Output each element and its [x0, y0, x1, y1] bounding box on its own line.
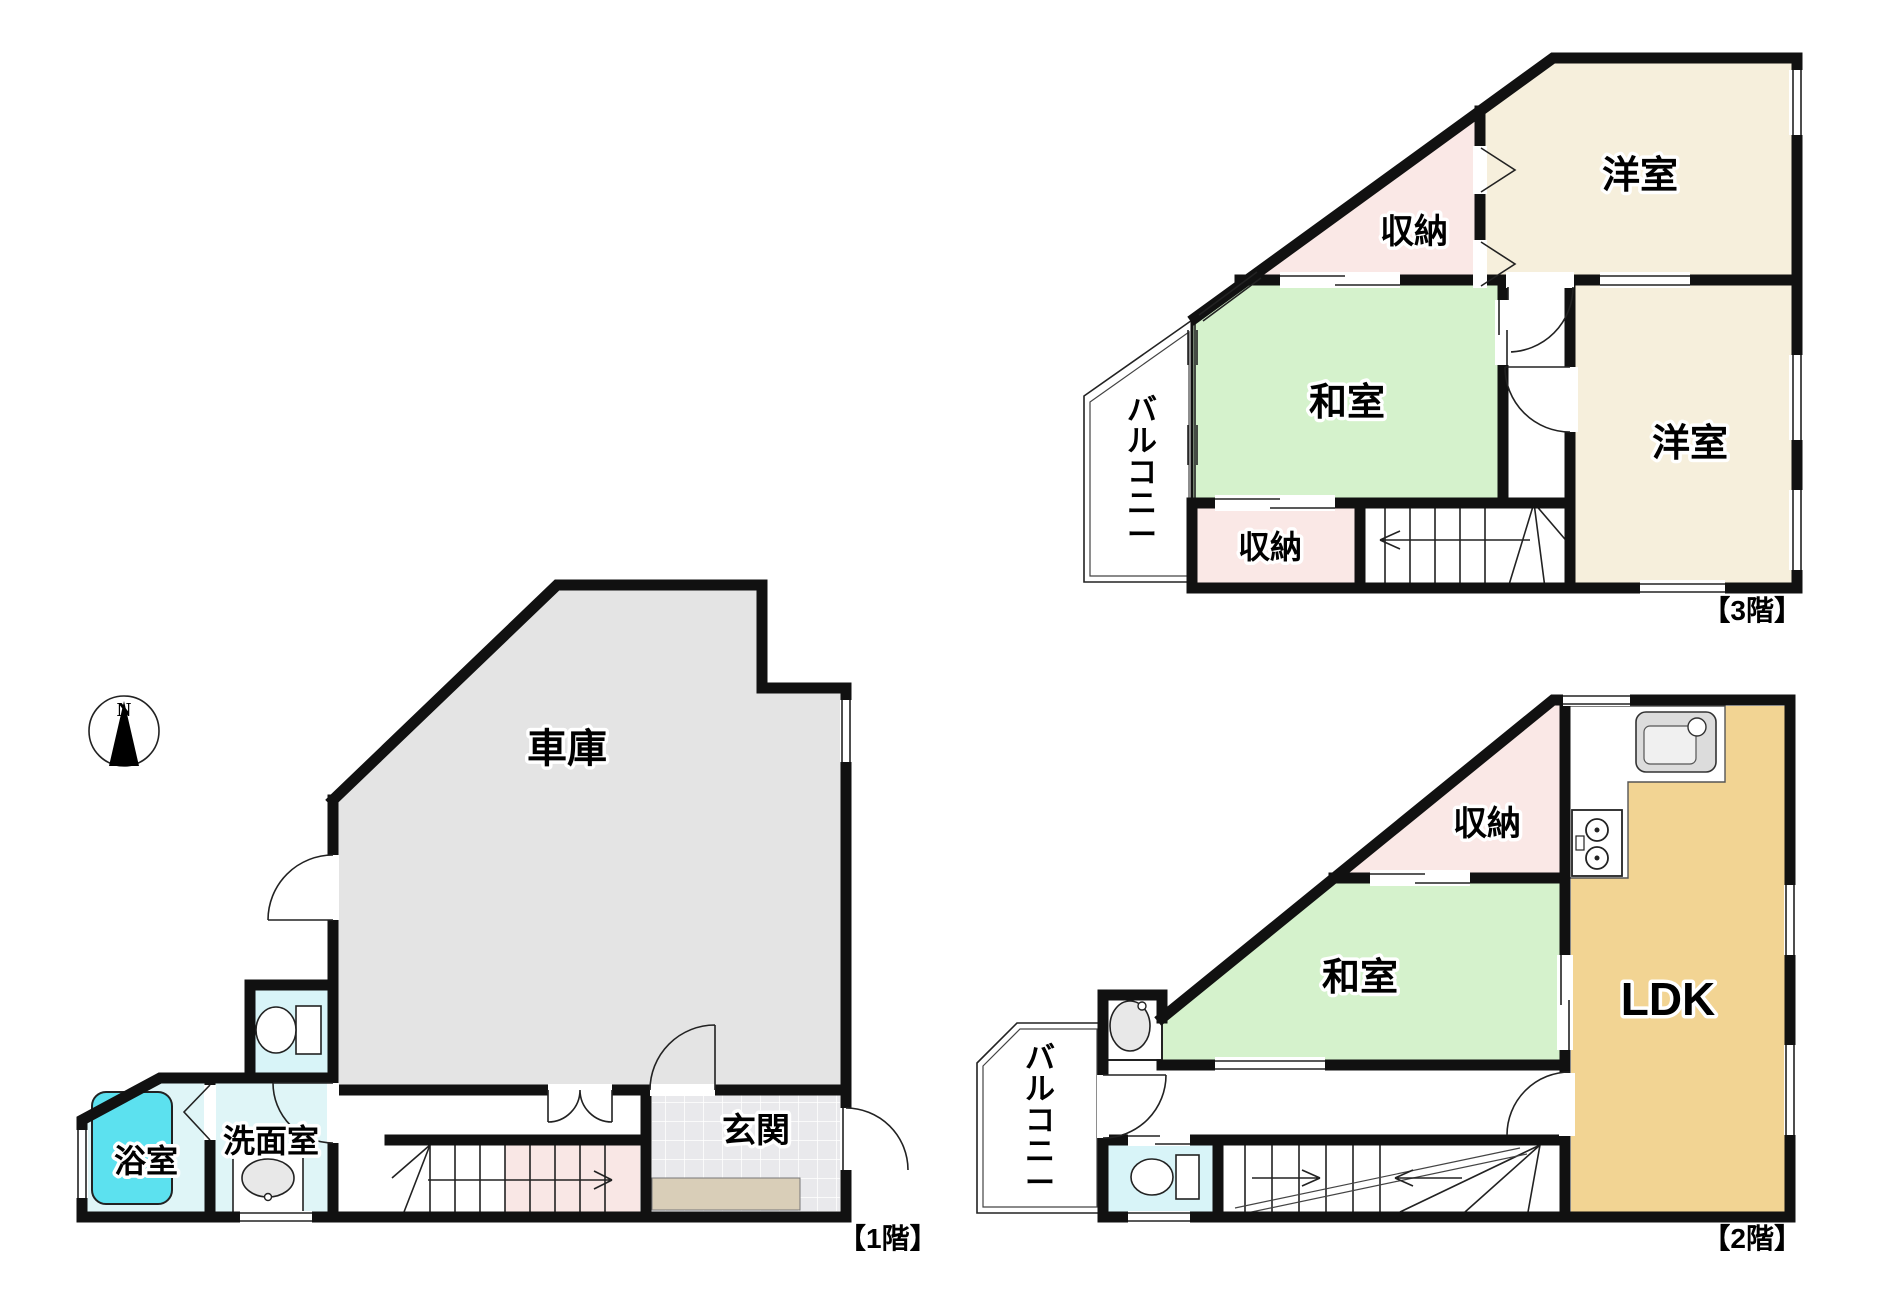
toilet-icon-1f [256, 1006, 321, 1054]
floor2-plan: 収納 和室 LDK バルコニー 【2階】 [977, 694, 1802, 1254]
floor2-label: 【2階】 [1702, 1223, 1802, 1254]
room-label-bathroom: 浴室 [114, 1143, 178, 1179]
entrance-mat [652, 1178, 800, 1210]
room-label-shuno-2f: 収納 [1453, 805, 1521, 843]
room-label-washroom: 洗面室 [223, 1123, 319, 1159]
room-label-washitsu-2f: 和室 [1322, 956, 1398, 999]
floor3-label: 【3階】 [1702, 595, 1802, 626]
compass-icon: N [89, 696, 159, 766]
room-label-yoshitsu-top-3f: 洋室 [1602, 154, 1678, 197]
room-label-shuno-top-3f: 収納 [1380, 213, 1448, 251]
room-garage [333, 585, 846, 1090]
floorplan-page: 収納 洋室 和室 洋室 収納 バルコニー 【3階】 N [0, 0, 1883, 1313]
compass-north-label: N [117, 699, 132, 721]
room-label-shuno-bottom-3f: 収納 [1238, 529, 1302, 565]
kitchen-sink-icon [1636, 712, 1716, 772]
room-label-garage: 車庫 [527, 727, 607, 771]
room-label-balcony-3f: バルコニー [1127, 394, 1157, 552]
floor1-label: 【1階】 [838, 1223, 938, 1254]
washbasin-icon-2f [1103, 995, 1162, 1060]
room-label-yoshitsu-right-3f: 洋室 [1652, 422, 1728, 465]
room-label-entrance: 玄関 [722, 1112, 790, 1150]
floor1-plan: N [76, 585, 938, 1254]
stove-icon [1572, 810, 1622, 876]
floor3-plan: 収納 洋室 和室 洋室 収納 バルコニー 【3階】 [1084, 58, 1805, 626]
room-label-balcony-2f: バルコニー [1025, 1042, 1055, 1200]
washbasin-icon-1f [233, 1150, 303, 1213]
room-label-washitsu-3f: 和室 [1309, 381, 1385, 424]
stairs-pink-1f [505, 1145, 640, 1212]
room-label-ldk: LDK [1621, 973, 1716, 1025]
